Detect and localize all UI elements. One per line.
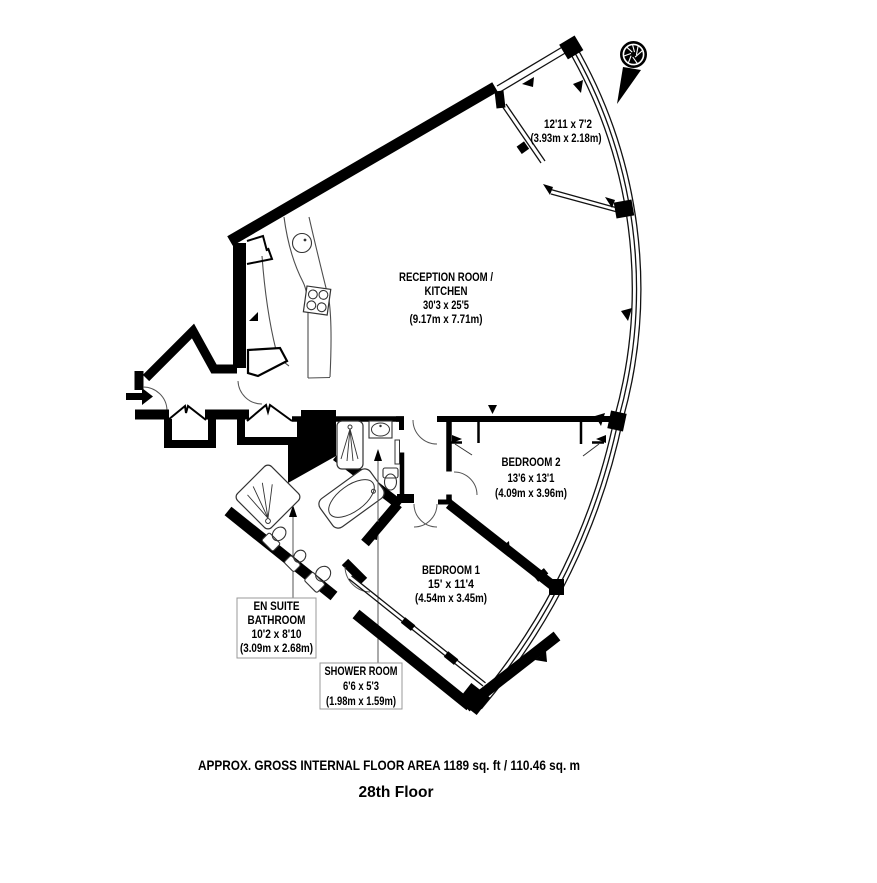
svg-text:BEDROOM 1: BEDROOM 1	[422, 563, 480, 577]
svg-text:(4.54m x 3.45m): (4.54m x 3.45m)	[415, 591, 487, 605]
svg-text:28th Floor: 28th Floor	[359, 784, 434, 801]
svg-text:30'3 x 25'5: 30'3 x 25'5	[423, 298, 469, 312]
svg-text:(1.98m x 1.59m): (1.98m x 1.59m)	[326, 694, 396, 708]
svg-text:EN SUITE: EN SUITE	[254, 599, 300, 613]
svg-text:15' x 11'4: 15' x 11'4	[428, 577, 474, 591]
svg-text:6'6 x 5'3: 6'6 x 5'3	[343, 679, 379, 693]
svg-text:BATHROOM: BATHROOM	[248, 613, 306, 627]
svg-text:APPROX. GROSS INTERNAL FLOOR A: APPROX. GROSS INTERNAL FLOOR AREA 1189 s…	[198, 758, 580, 773]
svg-text:(4.09m x 3.96m): (4.09m x 3.96m)	[495, 486, 567, 500]
svg-text:(3.93m x 2.18m): (3.93m x 2.18m)	[531, 131, 602, 145]
svg-text:10'2 x 8'10: 10'2 x 8'10	[252, 627, 302, 641]
svg-text:(9.17m x 7.71m): (9.17m x 7.71m)	[410, 312, 483, 326]
svg-text:RECEPTION ROOM /: RECEPTION ROOM /	[399, 270, 493, 284]
svg-text:SHOWER ROOM: SHOWER ROOM	[325, 664, 398, 678]
svg-text:(3.09m x 2.68m): (3.09m x 2.68m)	[240, 641, 313, 655]
svg-text:BEDROOM 2: BEDROOM 2	[502, 455, 561, 469]
svg-text:12'11 x 7'2: 12'11 x 7'2	[544, 117, 592, 131]
svg-text:KITCHEN: KITCHEN	[425, 284, 468, 298]
svg-text:13'6 x 13'1: 13'6 x 13'1	[508, 471, 555, 485]
